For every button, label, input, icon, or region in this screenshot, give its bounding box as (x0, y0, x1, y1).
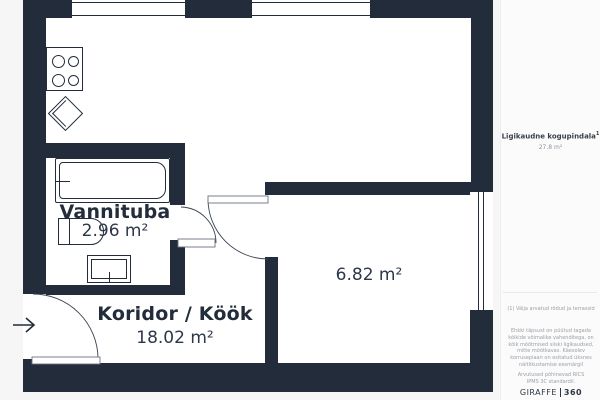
total-area-label-text: Ligikaudne kogupindala (502, 132, 596, 140)
corridor-name: Koridor / Köök (97, 303, 252, 325)
standard-text: Arvutused põhinevad RICS IPMS 3C standar… (515, 372, 587, 386)
label-corridor: Koridor / Köök (97, 303, 252, 325)
bathroom-name: Vannituba (60, 201, 171, 223)
entry-door-leaf (32, 357, 100, 364)
label-corridor-area: 18.02 m² (136, 328, 213, 348)
doors-overlay (23, 0, 493, 392)
label-bathroom-area: 2.96 m² (82, 221, 149, 241)
label-bathroom: Vannituba (60, 201, 171, 223)
corridor-area: 18.02 m² (136, 328, 213, 348)
floorplan-canvas: Vannituba 2.96 m² Koridor / Köök 18.02 m… (23, 0, 493, 392)
disclaimer-text: Ehkki täpsust on püütud tagada kõikide v… (507, 328, 595, 369)
room-682-area: 6.82 m² (336, 265, 403, 285)
logo-primary: GIRAFFE (520, 388, 561, 397)
entry-arrow-icon (11, 315, 37, 335)
total-area-value: 27.8 m² (501, 144, 600, 151)
room-682-door-arc (208, 200, 268, 259)
sidebar-divider (503, 292, 597, 293)
footnote-marker: 1 (596, 131, 599, 137)
logo-secondary: 360 (561, 388, 582, 397)
entry-door-arc (33, 294, 98, 358)
bathroom-door-leaf (178, 239, 215, 247)
label-room-682-area: 6.82 m² (336, 265, 403, 285)
giraffe360-logo: GIRAFFE360 (501, 388, 600, 397)
room-682-door-leaf (208, 196, 268, 203)
footnote-text: (1) Välja arvatud rõdud ja terrassid (506, 306, 596, 313)
total-area-label: Ligikaudne kogupindala1 (501, 130, 600, 141)
bathroom-door-arc (181, 207, 216, 243)
info-sidebar: Ligikaudne kogupindala1 27.8 m² (1) Välj… (500, 0, 600, 400)
bathroom-area: 2.96 m² (82, 221, 149, 241)
